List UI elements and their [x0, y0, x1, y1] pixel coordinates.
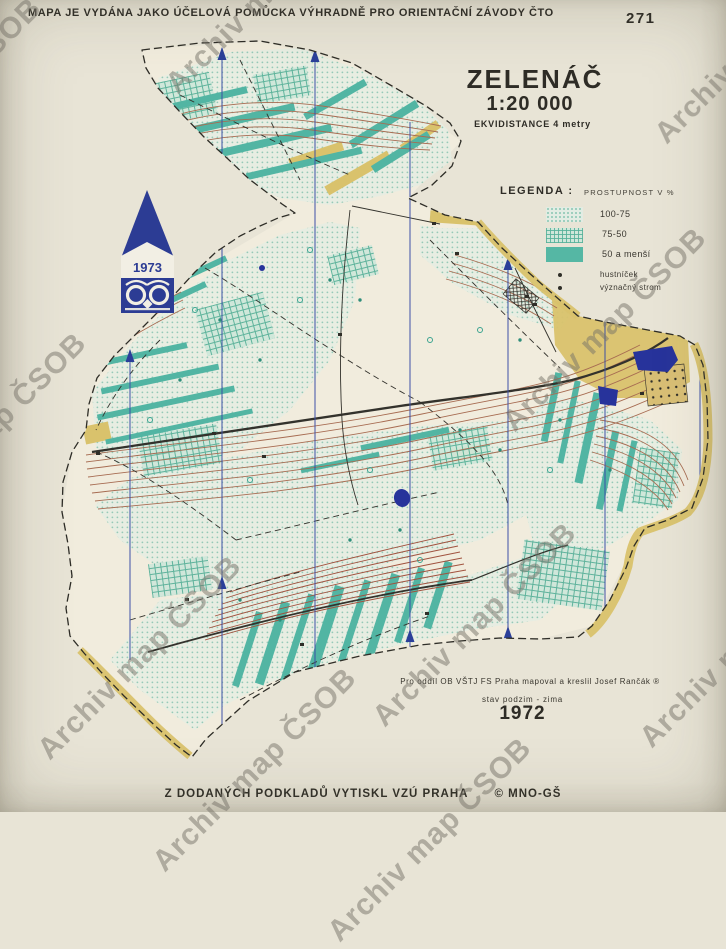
legend-dot-icon [558, 286, 562, 290]
imprint: Z DODANÝCH PODKLADŮ VYTISKL VZÚ PRAHA© M… [0, 788, 726, 800]
map-scale: 1:20 000 [450, 93, 610, 116]
emblem-year: 1973 [133, 260, 162, 275]
map-terrain [62, 41, 708, 757]
map-canvas: 1973 [0, 0, 726, 812]
scanned-map-page: { "page": { "background": "#e8e4d6" }, "… [0, 0, 726, 812]
disclaimer-text: MAPA JE VYDÁNA JAKO ÚČELOVÁ POMŮCKA VÝHR… [28, 7, 554, 19]
credits-year: 1972 [430, 703, 615, 725]
emblem-1973: 1973 [121, 190, 174, 313]
legend-item-label: 100-75 [600, 209, 630, 219]
map-title: ZELENÁČ [450, 64, 620, 95]
credits-line1: Pro oddíl OB VŠTJ FS Praha mapoval a kre… [380, 677, 680, 686]
copyright-text: © MNO-GŠ [494, 788, 561, 800]
legend-item-label: hustníček [600, 270, 638, 279]
legend-item-label: 50 a menší [602, 249, 651, 259]
legend-dot-icon [558, 273, 562, 277]
map-number: 271 [626, 10, 656, 27]
legend-item-label: význačný strom [600, 283, 661, 292]
legend-swatch-dots-light [546, 207, 583, 222]
legend-swatch-solid-teal [546, 247, 583, 262]
legend-swatch-grid-medium [546, 228, 583, 243]
imprint-text: Z DODANÝCH PODKLADŮ VYTISKL VZÚ PRAHA [165, 788, 469, 800]
legend-title: LEGENDA : [500, 185, 574, 197]
legend-item-label: 75-50 [602, 229, 627, 239]
legend-header: PROSTUPNOST V % [584, 188, 675, 197]
map-equidistance: EKVIDISTANCE 4 metry [450, 119, 615, 129]
